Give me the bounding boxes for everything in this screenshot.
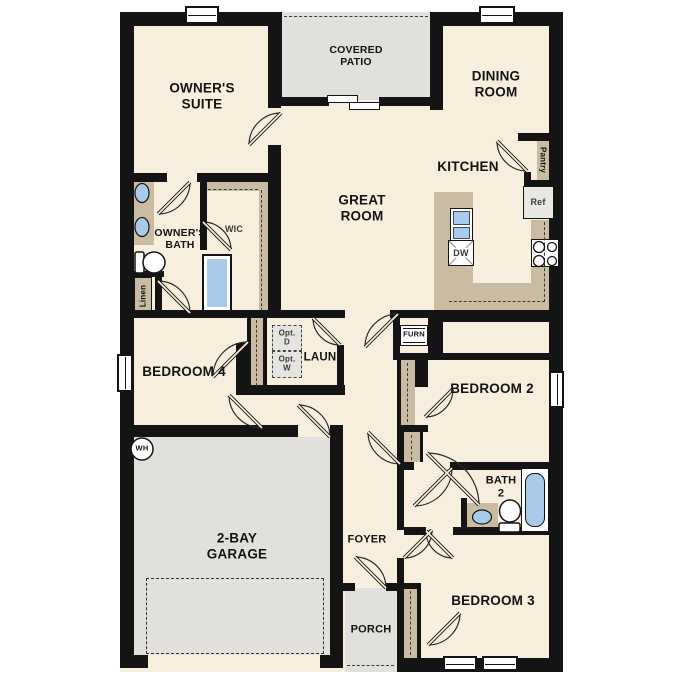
wall-segment: [415, 360, 428, 387]
closet-rod-dash: [411, 435, 412, 460]
pantry-label: Pantry: [538, 147, 547, 173]
room-label-kitchen: KITCHEN: [437, 159, 498, 175]
water-heater-label: WH: [136, 445, 149, 454]
room-label-bedroom-3: BEDROOM 3: [451, 593, 535, 609]
kitchen-counter-bottom: [434, 283, 560, 311]
room-label-bedroom-4: BEDROOM 4: [142, 364, 226, 380]
garage-door-outline: [146, 578, 324, 654]
dishwasher-label: DW: [452, 248, 469, 258]
wall-segment: [420, 432, 423, 462]
room-label-great-room: GREAT ROOM: [338, 192, 385, 223]
wall-segment: [393, 353, 428, 360]
window: [479, 6, 515, 24]
wall-segment: [337, 345, 344, 390]
wall-segment: [134, 173, 167, 182]
opt-washer-label: Opt. W: [279, 355, 296, 374]
room-label-dining-room: DINING ROOM: [472, 68, 520, 99]
wall-segment: [263, 316, 267, 390]
sink-basin: [453, 227, 470, 239]
room-label-bedroom-2: BEDROOM 2: [450, 381, 534, 397]
range: [531, 239, 559, 267]
wall-segment: [401, 588, 404, 658]
wall-segment: [273, 97, 329, 106]
furnace-label: FURN: [403, 331, 425, 340]
wall-segment: [120, 655, 148, 668]
wall-segment: [404, 462, 414, 470]
closet-rod-dash: [256, 320, 257, 386]
wall-segment: [417, 588, 421, 658]
wall-segment: [393, 316, 400, 353]
wall-segment: [120, 425, 298, 437]
wall-segment: [379, 97, 443, 106]
closet-rod-dash: [407, 363, 408, 422]
room-label-owners-bath: OWNER'S BATH: [154, 227, 205, 251]
wall-segment: [430, 12, 443, 110]
wall-segment: [443, 353, 563, 360]
room-label-wic: WIC: [225, 224, 243, 234]
room-label-porch: PORCH: [351, 624, 392, 637]
porch-open-edge: [347, 665, 394, 666]
wall-segment: [268, 145, 281, 316]
room-label-garage: 2-BAY GARAGE: [207, 530, 267, 561]
bedroom4-closet: [251, 316, 263, 390]
opt-dryer-label: Opt. D: [279, 329, 296, 348]
floor-plan: OWNER'S SUITE COVERED PATIO DINING ROOM …: [0, 0, 687, 687]
wall-segment: [120, 310, 345, 318]
wall-segment: [197, 173, 281, 182]
wall-segment: [330, 425, 343, 658]
wall-segment: [524, 172, 531, 180]
wic-shelf-dash: [261, 190, 262, 311]
hall-closet: [404, 432, 420, 462]
wall-segment: [518, 133, 563, 141]
wall-segment: [428, 310, 443, 360]
sink-basin: [453, 211, 470, 225]
wall-segment: [155, 277, 162, 317]
room-label-laundry: LAUN: [304, 351, 337, 364]
window: [117, 354, 133, 392]
patio-open-edge: [284, 16, 428, 17]
linen-label: Linen: [138, 285, 147, 307]
wall-segment: [549, 12, 563, 672]
room-label-covered-patio: COVERED PATIO: [329, 44, 382, 68]
cabinet-dash: [544, 222, 545, 302]
wall-segment: [268, 26, 281, 108]
room-label-owners-suite: OWNER'S SUITE: [169, 80, 234, 111]
wall-segment: [236, 385, 345, 395]
wall-segment: [397, 425, 404, 530]
window: [549, 371, 564, 408]
wall-segment: [430, 310, 563, 322]
wall-segment: [120, 12, 134, 668]
bathtub: [525, 473, 545, 527]
wall-segment: [404, 527, 426, 535]
wall-segment: [247, 316, 251, 390]
room-label-foyer: FOYER: [348, 534, 387, 547]
window: [185, 6, 219, 24]
cabinet-dash: [449, 301, 545, 302]
owners-bath-vanity: [134, 178, 154, 245]
sliding-door: [349, 102, 380, 110]
bedroom2-closet: [401, 360, 415, 425]
wic-shelf-dash: [208, 189, 258, 190]
wall-segment: [343, 583, 355, 591]
closet-rod-dash: [410, 591, 411, 655]
window: [482, 656, 518, 671]
wall-segment: [397, 360, 401, 425]
room-label-bath-2: BATH 2: [486, 474, 517, 500]
window: [443, 656, 477, 671]
shower: [202, 254, 232, 312]
refrigerator-label: Ref: [530, 197, 545, 207]
